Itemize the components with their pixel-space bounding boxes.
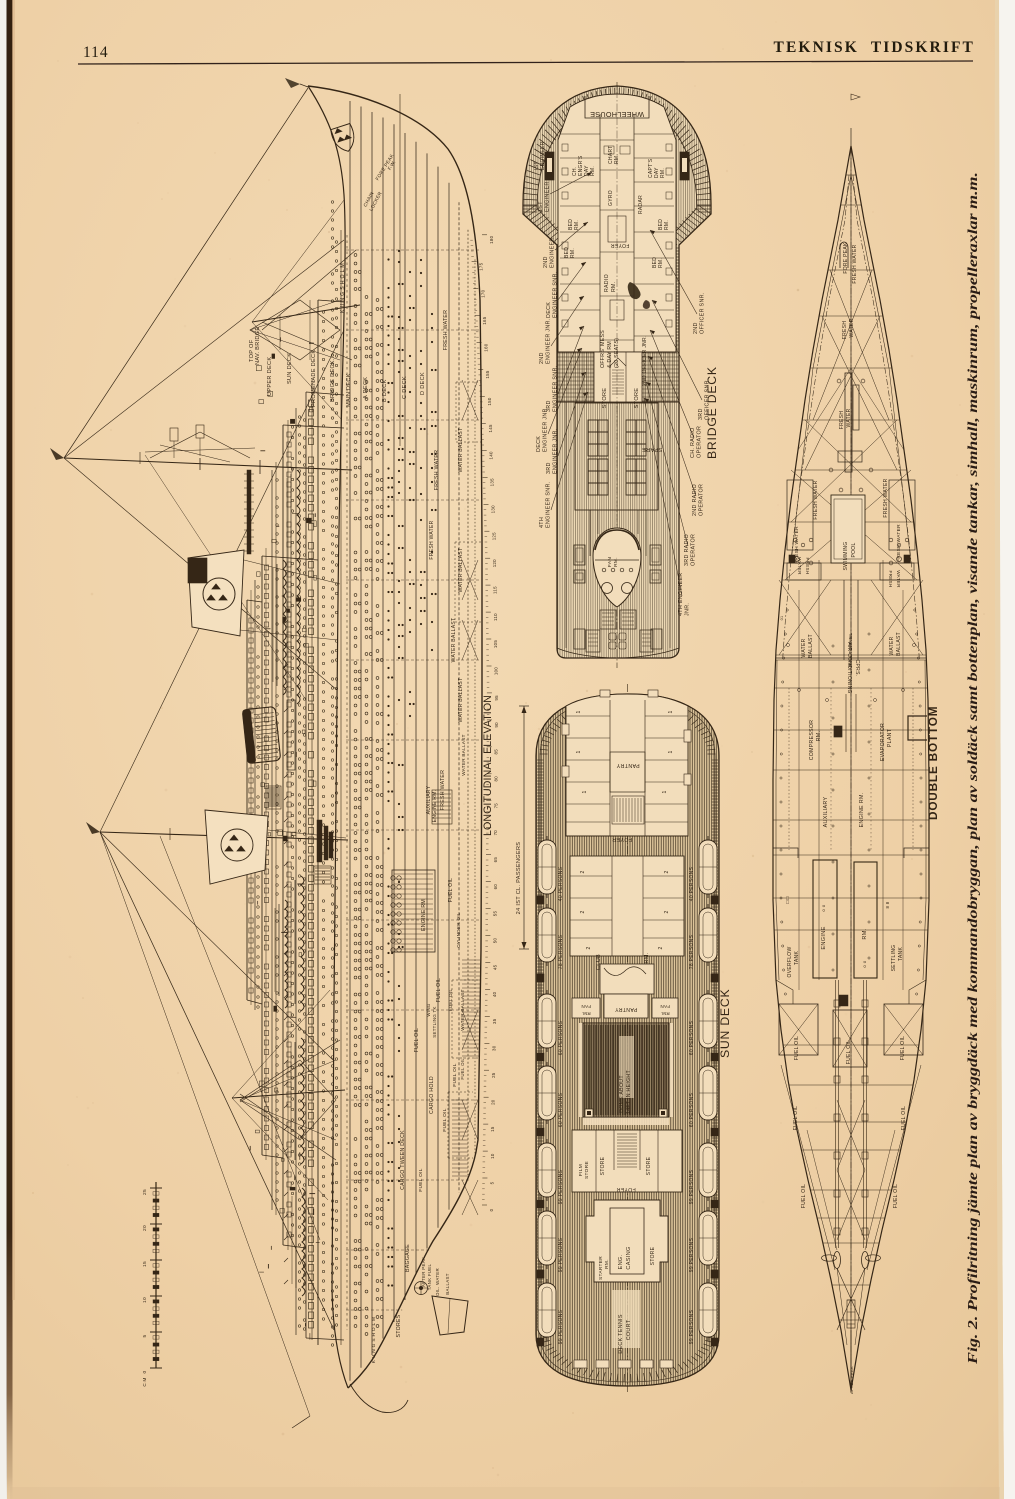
svg-text:PLANT: PLANT [887, 728, 893, 747]
svg-text:UPPER DECK: UPPER DECK [267, 357, 273, 396]
svg-text:ENGINEER JNR.: ENGINEER JNR. [543, 406, 549, 452]
svg-text:RM.: RM. [574, 220, 580, 230]
svg-text:DECK: DECK [536, 436, 542, 452]
svg-text:45: 45 [492, 964, 497, 970]
svg-text:K U N G S H O L M: K U N G S H O L M [371, 1317, 377, 1364]
svg-text:140: 140 [489, 451, 494, 459]
svg-text:60 PERSONS: 60 PERSONS [689, 1092, 695, 1127]
svg-text:ENGINEER: ENGINEER [545, 181, 551, 212]
svg-text:PROMENADE DECK: PROMENADE DECK [311, 350, 317, 407]
svg-text:FUEL OIL: FUEL OIL [418, 1168, 424, 1192]
svg-text:WATER BALLAST: WATER BALLAST [458, 678, 464, 723]
svg-text:BRIDGE DECK: BRIDGE DECK [705, 366, 719, 459]
svg-text:FAN: FAN [660, 1004, 670, 1009]
svg-text:160: 160 [484, 343, 489, 351]
svg-text:STORE: STORE [584, 1161, 590, 1179]
svg-text:OVERFLOW: OVERFLOW [787, 946, 793, 977]
svg-text:OPERATOR: OPERATOR [691, 534, 697, 566]
svg-text:RADAR: RADAR [638, 195, 644, 214]
svg-text:STARTER: STARTER [598, 1256, 604, 1280]
svg-text:FUEL OIL: FUEL OIL [794, 1036, 800, 1060]
svg-text:FUEL OIL: FUEL OIL [448, 989, 453, 1012]
svg-text:ENGINEER JNR.: ENGINEER JNR. [553, 428, 559, 474]
svg-text:FUEL OIL: FUEL OIL [846, 1040, 852, 1064]
svg-text:105: 105 [493, 640, 498, 648]
svg-text:RM.: RM. [590, 166, 596, 176]
svg-text:RM.: RM. [660, 1011, 669, 1016]
svg-text:STORE: STORE [600, 1156, 606, 1175]
svg-text:JNR.: JNR. [685, 603, 691, 616]
svg-text:15: 15 [142, 1261, 148, 1267]
svg-text:CASING: CASING [626, 1246, 632, 1269]
svg-text:GYRO: GYRO [608, 190, 614, 206]
svg-text:TANK: TANK [898, 947, 904, 962]
svg-text:SETTLING: SETTLING [891, 945, 897, 972]
svg-text:WATER: WATER [896, 570, 901, 588]
svg-text:80: 80 [494, 776, 499, 782]
svg-text:BRIDGE DECK...: BRIDGE DECK... [330, 354, 336, 402]
svg-text:FAN: FAN [581, 1004, 591, 1009]
svg-text:WATER: WATER [849, 318, 855, 337]
svg-text:20: 20 [491, 1099, 496, 1105]
svg-text:FRESH WATER: FRESH WATER [883, 478, 889, 517]
svg-text:FRESH: FRESH [805, 557, 810, 574]
svg-text:TANK: TANK [794, 951, 800, 966]
svg-text:99 PERSONS: 99 PERSONS [689, 1237, 695, 1272]
svg-text:2: 2 [664, 910, 670, 913]
svg-text:& DAY RM: & DAY RM [607, 341, 613, 368]
svg-text:99 PERSONS: 99 PERSONS [689, 1309, 695, 1344]
svg-text:25: 25 [142, 1189, 148, 1195]
svg-text:RM.: RM. [664, 220, 670, 230]
svg-text:AIR CONDITIONING: AIR CONDITIONING [846, 642, 852, 693]
svg-text:WATER BALLAST: WATER BALLAST [460, 989, 465, 1030]
svg-text:2: 2 [580, 870, 586, 873]
svg-text:25: 25 [491, 1072, 496, 1078]
svg-text:WATER: WATER [889, 636, 895, 655]
svg-text:FUEL OIL: FUEL OIL [793, 1106, 799, 1130]
svg-text:60 PERSONS: 60 PERSONS [558, 1092, 564, 1127]
svg-text:BALLAST: BALLAST [445, 1273, 450, 1294]
svg-text:15: 15 [490, 1126, 495, 1132]
svg-text:120: 120 [492, 559, 497, 567]
svg-text:COMPRESSOR: COMPRESSOR [809, 720, 815, 760]
svg-text:WATER: WATER [801, 638, 807, 657]
svg-text:78 PERSONS: 78 PERSONS [689, 934, 695, 969]
svg-text:WATER: WATER [846, 408, 852, 427]
svg-text:65: 65 [493, 857, 498, 863]
svg-text:FOYER: FOYER [612, 836, 632, 842]
svg-text:3RD RADIO: 3RD RADIO [684, 534, 690, 566]
svg-text:DOME ABOUT: DOME ABOUT [619, 1075, 625, 1113]
svg-text:WATER BALLAST: WATER BALLAST [458, 548, 464, 593]
svg-text:90: 90 [494, 722, 499, 728]
svg-text:2: 2 [586, 946, 592, 949]
svg-text:130: 130 [491, 505, 496, 513]
svg-text:4TH: 4TH [539, 517, 545, 528]
svg-text:RM.: RM. [644, 952, 650, 963]
svg-text:14FT IN HEIGHT: 14FT IN HEIGHT [626, 1070, 632, 1114]
svg-text:0: 0 [142, 1370, 148, 1373]
svg-text:145: 145 [488, 424, 493, 432]
svg-text:1ST: 1ST [538, 201, 544, 212]
svg-text:78 PERSONS: 78 PERSONS [558, 934, 564, 969]
svg-text:40: 40 [492, 991, 497, 997]
svg-text:AUXILIARY: AUXILIARY [823, 797, 829, 828]
svg-text:STORE: STORE [646, 1156, 652, 1175]
svg-text:FUEL OIL: FUEL OIL [893, 1184, 899, 1208]
svg-text:COURT: COURT [626, 1319, 632, 1340]
svg-text:2ND OFFICER JNR.: 2ND OFFICER JNR. [642, 335, 648, 386]
svg-text:5: 5 [142, 1334, 148, 1337]
svg-text:99 PERSONS: 99 PERSONS [558, 1309, 564, 1344]
svg-text:OFFRS' MESS: OFFRS' MESS [600, 330, 606, 368]
svg-text:01: 01 [780, 616, 784, 621]
svg-text:60 PERSONS: 60 PERSONS [689, 1020, 695, 1055]
svg-text:35: 35 [492, 1018, 497, 1024]
svg-text:FRESH WATER: FRESH WATER [813, 480, 819, 519]
svg-text:POOL: POOL [851, 542, 857, 557]
svg-text:FUEL OIL: FUEL OIL [414, 1028, 420, 1052]
svg-text:EVAPORATOR: EVAPORATOR [880, 723, 886, 761]
svg-text:1: 1 [576, 710, 582, 713]
svg-text:170: 170 [480, 289, 485, 297]
svg-text:CARGO TWEEN DECK: CARGO TWEEN DECK [400, 1130, 406, 1190]
svg-text:DECK: DECK [546, 302, 552, 318]
svg-text:STORE: STORE [650, 1246, 656, 1265]
svg-text:☐☐: ☐☐ [785, 896, 790, 904]
svg-text:2ND: 2ND [543, 256, 549, 268]
svg-text:ENGINEER: ENGINEER [550, 237, 556, 268]
svg-text:WATER BALLAST: WATER BALLAST [458, 428, 464, 473]
svg-text:ENGINE: ENGINE [821, 926, 827, 949]
svg-text:2: 2 [658, 946, 664, 949]
svg-text:40 PERSONS: 40 PERSONS [558, 866, 564, 901]
svg-text:FUEL OIL: FUEL OIL [900, 1036, 906, 1060]
svg-text:FUEL OIL: FUEL OIL [436, 978, 442, 1002]
svg-text:115: 115 [493, 586, 498, 594]
svg-text:8 8: 8 8 [885, 901, 890, 908]
svg-text:K U N G S H O L M: K U N G S H O L M [340, 263, 346, 313]
svg-text:o o: o o [862, 960, 867, 967]
svg-text:ENGINE RM.: ENGINE RM. [859, 792, 865, 827]
svg-text:180: 180 [489, 235, 494, 243]
svg-text:BALLAST: BALLAST [808, 634, 814, 658]
svg-text:2: 2 [664, 870, 670, 873]
svg-text:1: 1 [662, 790, 668, 793]
svg-text:FRESH WATER: FRESH WATER [443, 310, 449, 350]
svg-text:1: 1 [576, 750, 582, 753]
svg-text:55: 55 [493, 911, 498, 917]
svg-text:ENGINEER JNR.: ENGINEER JNR. [546, 318, 552, 364]
svg-text:135: 135 [490, 478, 495, 486]
svg-text:60: 60 [493, 884, 498, 890]
svg-text:CYLINDER OIL: CYLINDER OIL [456, 912, 461, 948]
svg-text:FUEL OIL.: FUEL OIL. [460, 1056, 465, 1079]
svg-text:CH. RADIO: CH. RADIO [690, 427, 696, 458]
svg-text:FUEL OIL: FUEL OIL [442, 1108, 448, 1132]
svg-text:FUEL OIL: FUEL OIL [448, 878, 454, 902]
svg-text:Fig. 2. Profilritning jämte pl: Fig. 2. Profilritning jämte plan av bryg… [966, 172, 981, 1365]
svg-text:2ND: 2ND [539, 352, 545, 364]
svg-text:175: 175 [479, 262, 484, 270]
svg-text:125: 125 [491, 532, 496, 540]
svg-text:OFFICER SNR.: OFFICER SNR. [700, 292, 706, 334]
svg-text:WATER: WATER [797, 557, 802, 575]
svg-text:FORE PEAK: FORE PEAK [843, 242, 849, 274]
svg-text:SUN DECK: SUN DECK [287, 353, 293, 384]
svg-text:FRESH: FRESH [888, 570, 893, 587]
svg-text:TEKNISK TIDSKRIFT: TEKNISK TIDSKRIFT [774, 39, 975, 56]
svg-text:2ND RADIO: 2ND RADIO [692, 484, 698, 516]
svg-text:2: 2 [580, 910, 586, 913]
svg-text:FRESH: FRESH [842, 321, 848, 340]
svg-text:WATER BALLAST: WATER BALLAST [451, 618, 457, 663]
svg-text:NAV. BRIDGE: NAV. BRIDGE [255, 327, 261, 365]
svg-text:FRESH WATER: FRESH WATER [434, 450, 440, 490]
svg-text:40 PERSONS: 40 PERSONS [689, 866, 695, 901]
svg-text:DECK TENNIS: DECK TENNIS [618, 1314, 624, 1354]
svg-text:20: 20 [142, 1225, 148, 1231]
svg-text:OPERATOR: OPERATOR [697, 426, 703, 458]
svg-text:RM.: RM. [570, 248, 576, 258]
svg-text:RM.: RM. [816, 731, 822, 741]
svg-text:3RD: 3RD [698, 408, 704, 420]
svg-text:RM.: RM. [611, 282, 617, 292]
svg-text:FRESH: FRESH [839, 411, 845, 430]
svg-text:75: 75 [493, 803, 498, 809]
svg-text:STORES: STORES [396, 1314, 402, 1337]
svg-text:FUEL OIL: FUEL OIL [901, 1106, 907, 1130]
svg-text:ENGINEER: ENGINEER [540, 141, 546, 170]
svg-text:SPARE: SPARE [642, 446, 663, 452]
svg-text:1: 1 [668, 750, 674, 753]
svg-text:o o: o o [821, 904, 826, 911]
svg-text:10: 10 [142, 1297, 148, 1303]
svg-text:C M: C M [142, 1377, 147, 1386]
svg-text:SUN DECK: SUN DECK [718, 989, 732, 1058]
svg-text:RADIO: RADIO [604, 274, 610, 292]
svg-text:ENGINEER SNR.: ENGINEER SNR. [546, 482, 552, 528]
svg-text:30: 30 [491, 1045, 496, 1051]
svg-text:SETTLING TK: SETTLING TK [432, 1006, 437, 1038]
svg-text:RM.: RM. [660, 168, 666, 178]
svg-text:DOUBLE BOTTOM: DOUBLE BOTTOM [926, 706, 940, 820]
svg-text:OPERATOR: OPERATOR [699, 484, 705, 516]
svg-text:FUEL OIL: FUEL OIL [452, 1063, 458, 1087]
svg-text:FILM: FILM [578, 1164, 584, 1176]
svg-text:ENGINEER SNR.: ENGINEER SNR. [553, 366, 559, 412]
svg-text:24 IST CL. PASSENGERS: 24 IST CL. PASSENGERS [516, 842, 522, 915]
svg-text:3RD: 3RD [546, 462, 552, 474]
svg-text:AFTER PEAK: AFTER PEAK [849, 1366, 854, 1394]
svg-text:RM.: RM. [613, 557, 619, 567]
svg-text:RM.: RM. [862, 928, 868, 939]
svg-text:FOYER: FOYER [616, 1186, 635, 1192]
svg-text:FUEL OIL: FUEL OIL [801, 1184, 807, 1208]
svg-text:WING: WING [426, 1003, 431, 1016]
svg-text:TANK FUEL: TANK FUEL [427, 1263, 432, 1290]
svg-text:BALLAST: BALLAST [896, 632, 902, 656]
svg-text:50: 50 [492, 938, 497, 944]
svg-text:FAN: FAN [607, 557, 613, 567]
svg-text:OIL. WATER: OIL. WATER [435, 1268, 440, 1296]
svg-text:99 PERSONS: 99 PERSONS [558, 1169, 564, 1204]
svg-text:D DECK: D DECK [420, 372, 426, 395]
svg-text:RM.: RM. [658, 258, 664, 268]
svg-text:CARGO HOLD: CARGO HOLD [429, 1076, 435, 1114]
svg-text:2ND: 2ND [693, 322, 699, 334]
svg-text:CPRS.: CPRS. [854, 660, 860, 677]
svg-text:60 PERSONS: 60 PERSONS [558, 1020, 564, 1055]
svg-text:0: 0 [489, 1208, 494, 1211]
svg-text:ENGINEER SNR.: ENGINEER SNR. [553, 272, 559, 318]
svg-text:STORE: STORE [602, 388, 608, 409]
svg-text:WATER BALLAST: WATER BALLAST [461, 734, 466, 775]
svg-text:10: 10 [490, 1153, 495, 1159]
svg-text:SWIMMING: SWIMMING [843, 541, 849, 570]
svg-text:ENGINE RM: ENGINE RM [421, 899, 427, 931]
svg-text:99 PERSONS: 99 PERSONS [689, 1169, 695, 1204]
svg-text:FRESH WATER: FRESH WATER [852, 244, 858, 283]
svg-text:B DECK: B DECK [382, 379, 388, 402]
svg-text:STORE: STORE [634, 388, 640, 409]
svg-text:PANTRY: PANTRY [615, 1006, 638, 1012]
svg-text:85: 85 [494, 749, 499, 755]
svg-text:95: 95 [494, 695, 499, 701]
svg-text:A DECK: A DECK [363, 377, 369, 399]
svg-text:MAIN DECK: MAIN DECK [346, 373, 352, 407]
svg-text:100: 100 [494, 667, 499, 675]
svg-text:1: 1 [668, 710, 674, 713]
svg-text:RM.: RM. [581, 1011, 590, 1016]
svg-text:AFTER PEAK: AFTER PEAK [421, 1257, 426, 1287]
svg-text:FOYER: FOYER [611, 242, 630, 248]
svg-text:5: 5 [489, 1181, 494, 1184]
svg-text:LONGITUDINAL ELEVATION: LONGITUDINAL ELEVATION [482, 695, 494, 836]
svg-text:150: 150 [487, 397, 492, 405]
svg-text:114: 114 [83, 44, 109, 61]
svg-text:PANTRY: PANTRY [616, 762, 639, 768]
svg-text:1: 1 [582, 790, 588, 793]
svg-text:FRESH WATER: FRESH WATER [896, 524, 902, 562]
svg-text:110: 110 [493, 613, 498, 621]
svg-text:155: 155 [485, 370, 490, 378]
svg-text:RM.: RM. [604, 1259, 610, 1269]
svg-text:C DECK: C DECK [402, 376, 408, 399]
svg-text:BAGGAGE: BAGGAGE [405, 1244, 411, 1272]
svg-text:FRESH WATER: FRESH WATER [429, 520, 435, 559]
svg-text:99 PERSONS: 99 PERSONS [558, 1237, 564, 1272]
svg-text:165: 165 [482, 316, 487, 324]
svg-text:ENG.: ENG. [618, 1254, 624, 1269]
